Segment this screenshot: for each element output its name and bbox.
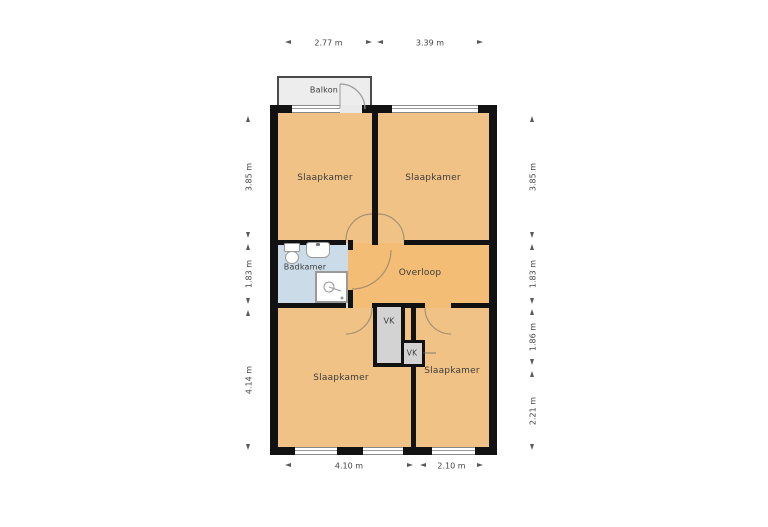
dim-right-2-label: 1.83 m	[528, 256, 537, 292]
wall-between-top-bedrooms	[372, 113, 378, 240]
label-vk-large: VK	[383, 317, 394, 326]
window-bottom-right	[432, 447, 475, 455]
window-top-right-bedroom	[392, 105, 478, 113]
wall-exterior-right	[489, 105, 497, 455]
wall-exterior-left	[270, 105, 278, 455]
sink-tap-icon	[316, 243, 320, 246]
label-overloop: Overloop	[399, 268, 441, 278]
wall-bottom-seg2	[337, 447, 363, 455]
dim-left-3: 4.14 m	[244, 310, 254, 450]
label-slaapkamer-bottom-right: Slaapkamer	[424, 366, 480, 376]
dim-left-1: 3.85 m	[244, 116, 254, 238]
room-slaapkamer-bottom-right	[416, 308, 489, 447]
label-balkon: Balkon	[310, 86, 338, 95]
wall-between-bottom-bedrooms	[411, 308, 416, 455]
dim-right-2: 1.83 m	[528, 244, 538, 304]
dim-right-4: 2.21 m	[528, 371, 538, 450]
dim-bottom-1: 4.10 m	[285, 461, 413, 471]
label-badkamer: Badkamer	[284, 263, 326, 272]
dim-left-3-label: 4.14 m	[244, 362, 253, 398]
wall-bottom-seg4	[475, 447, 497, 455]
balcony-door-opening	[340, 105, 362, 113]
dim-bottom-1-label: 4.10 m	[331, 461, 367, 470]
label-slaapkamer-top-left: Slaapkamer	[297, 173, 353, 183]
dim-right-3-label: 1.86 m	[528, 319, 537, 355]
label-vk-small: VK	[407, 349, 417, 358]
dim-right-1: 3.85 m	[528, 116, 538, 238]
wall-overloop-bottom-seg3	[451, 303, 489, 308]
wall-overloop-bottom-seg1	[278, 303, 346, 308]
dim-left-2: 1.83 m	[244, 244, 254, 304]
dim-left-2-label: 1.83 m	[244, 256, 253, 292]
badkamer-door-opening	[348, 250, 353, 290]
wall-overloop-top-seg3	[404, 240, 489, 245]
dim-top-1: 2.77 m	[285, 38, 372, 48]
label-slaapkamer-bottom-left: Slaapkamer	[313, 373, 369, 383]
dim-bottom-2: 2.10 m	[420, 461, 483, 471]
floorplan-canvas: Balkon Slaapkamer Slaapkamer Badkamer Ov…	[0, 0, 768, 527]
dim-bottom-2-label: 2.10 m	[433, 461, 469, 470]
label-slaapkamer-top-right: Slaapkamer	[405, 173, 461, 183]
window-balcony	[292, 105, 340, 113]
wall-bottom-seg3	[403, 447, 432, 455]
wall-badkamer-right-seg1	[348, 240, 353, 250]
dim-top-2-label: 3.39 m	[412, 38, 448, 47]
window-bottom-left-2	[363, 447, 403, 455]
wall-bottom-seg1	[270, 447, 295, 455]
wall-top-seg2	[362, 105, 392, 113]
wall-top-seg1	[270, 105, 292, 113]
dim-top-1-label: 2.77 m	[310, 38, 346, 47]
dim-right-1-label: 3.85 m	[528, 159, 537, 195]
dim-top-2: 3.39 m	[377, 38, 483, 48]
dim-right-3: 1.86 m	[528, 309, 538, 365]
wall-top-seg3	[478, 105, 497, 113]
wall-overloop-top-seg2	[372, 240, 378, 245]
dim-right-4-label: 2.21 m	[528, 392, 537, 428]
dim-left-1-label: 3.85 m	[244, 159, 253, 195]
window-bottom-left-1	[295, 447, 337, 455]
shower	[315, 271, 348, 303]
wall-badkamer-right-seg2	[348, 290, 353, 308]
